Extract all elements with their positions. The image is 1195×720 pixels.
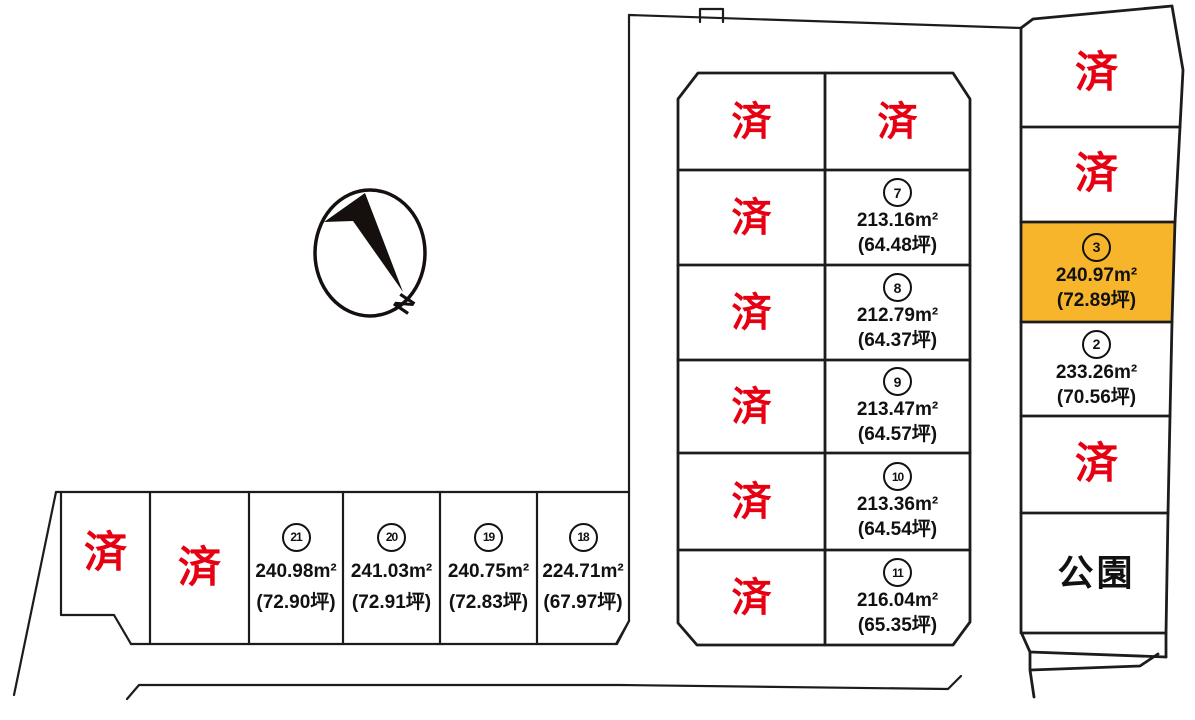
park-lot: 公園 bbox=[1021, 513, 1172, 633]
lot-10[interactable]: 10 213.36m² (64.54坪) bbox=[825, 453, 970, 550]
lot-number-badge: 11 bbox=[883, 558, 912, 587]
west-boundary-slant bbox=[14, 492, 56, 695]
lot-area: 213.36m² bbox=[857, 494, 938, 516]
sold-lot: 済 bbox=[678, 453, 825, 550]
lot-number-badge: 10 bbox=[883, 462, 912, 491]
sold-lot: 済 bbox=[1021, 127, 1172, 222]
lot-area: 240.98m² bbox=[255, 561, 336, 583]
lot-number-badge: 20 bbox=[377, 523, 406, 552]
sold-mark: 済 bbox=[178, 547, 221, 590]
sold-lot: 済 bbox=[678, 360, 825, 453]
boundary-notch bbox=[700, 9, 723, 22]
lot-7[interactable]: 7 213.16m² (64.48坪) bbox=[825, 170, 970, 265]
lot-number-badge: 8 bbox=[883, 273, 912, 302]
lot-area: 213.47m² bbox=[857, 399, 938, 421]
lot-number-badge: 2 bbox=[1082, 330, 1111, 359]
sold-lot: 済 bbox=[1021, 19, 1172, 127]
sold-lot: 済 bbox=[150, 492, 249, 644]
lot-number-badge: 7 bbox=[883, 178, 912, 207]
sold-mark: 済 bbox=[1075, 52, 1118, 95]
lot-tsubo: (72.83坪) bbox=[449, 592, 528, 614]
lot-number-badge: 3 bbox=[1082, 233, 1111, 262]
lot-tsubo: (64.57坪) bbox=[858, 424, 937, 446]
lot-area: 240.97m² bbox=[1056, 265, 1137, 287]
lot-area: 212.79m² bbox=[857, 305, 938, 327]
lot-2[interactable]: 2 233.26m² (70.56坪) bbox=[1021, 322, 1172, 416]
lot-tsubo: (64.48坪) bbox=[858, 235, 937, 257]
lot-number-badge: 9 bbox=[883, 367, 912, 396]
sold-mark: 済 bbox=[732, 387, 772, 427]
lot-area: 213.16m² bbox=[857, 210, 938, 232]
sold-mark: 済 bbox=[1075, 153, 1118, 196]
sold-lot: 済 bbox=[678, 265, 825, 360]
lot-map: N 済 済 済 済 済 済 済 7 213.16m² (64.48坪) 8 21… bbox=[0, 0, 1195, 720]
lot-9[interactable]: 9 213.47m² (64.57坪) bbox=[825, 360, 970, 453]
sold-mark: 済 bbox=[732, 198, 772, 238]
lot-tsubo: (65.35坪) bbox=[858, 615, 937, 637]
sold-lot: 済 bbox=[678, 73, 825, 170]
sold-mark: 済 bbox=[732, 482, 772, 522]
sold-mark: 済 bbox=[732, 102, 772, 142]
sold-mark: 済 bbox=[84, 532, 127, 575]
lot-number-badge: 18 bbox=[569, 523, 598, 552]
lot-tsubo: (64.37坪) bbox=[858, 330, 937, 352]
lot-tsubo: (72.91坪) bbox=[352, 592, 431, 614]
sold-mark: 済 bbox=[732, 578, 772, 618]
lot-tsubo: (72.89坪) bbox=[1057, 290, 1136, 312]
lot-tsubo: (67.97坪) bbox=[543, 592, 622, 614]
lot-area: 216.04m² bbox=[857, 590, 938, 612]
lot-tsubo: (70.56坪) bbox=[1057, 387, 1136, 409]
lot-18[interactable]: 18 224.71m² (67.97坪) bbox=[537, 492, 629, 644]
sold-lot: 済 bbox=[678, 170, 825, 265]
park-road-line-1 bbox=[1030, 652, 1166, 657]
lot-number-badge: 21 bbox=[282, 523, 311, 552]
lot-8[interactable]: 8 212.79m² (64.37坪) bbox=[825, 265, 970, 360]
sold-lot: 済 bbox=[825, 73, 970, 170]
lot-number-badge: 19 bbox=[474, 523, 503, 552]
boundary-top-line bbox=[629, 15, 1021, 28]
lot-21[interactable]: 21 240.98m² (72.90坪) bbox=[249, 492, 343, 644]
sold-lot: 済 bbox=[61, 492, 150, 615]
lot-20[interactable]: 20 241.03m² (72.91坪) bbox=[343, 492, 440, 644]
lot-area: 233.26m² bbox=[1056, 362, 1137, 384]
sold-mark: 済 bbox=[878, 102, 918, 142]
lot-3-highlighted[interactable]: 3 240.97m² (72.89坪) bbox=[1021, 222, 1172, 322]
lot-tsubo: (72.90坪) bbox=[256, 592, 335, 614]
lot-11[interactable]: 11 216.04m² (65.35坪) bbox=[825, 550, 970, 645]
sold-mark: 済 bbox=[732, 293, 772, 333]
lot-19[interactable]: 19 240.75m² (72.83坪) bbox=[440, 492, 537, 644]
lot-tsubo: (64.54坪) bbox=[858, 519, 937, 541]
sold-lot: 済 bbox=[1021, 416, 1172, 513]
sold-mark: 済 bbox=[1075, 443, 1118, 486]
lot-area: 240.75m² bbox=[448, 561, 529, 583]
park-label: 公園 bbox=[1057, 555, 1135, 591]
sold-lot: 済 bbox=[678, 550, 825, 645]
road-line-bottom bbox=[127, 676, 961, 699]
lot-area: 241.03m² bbox=[351, 561, 432, 583]
lot-area: 224.71m² bbox=[542, 561, 623, 583]
